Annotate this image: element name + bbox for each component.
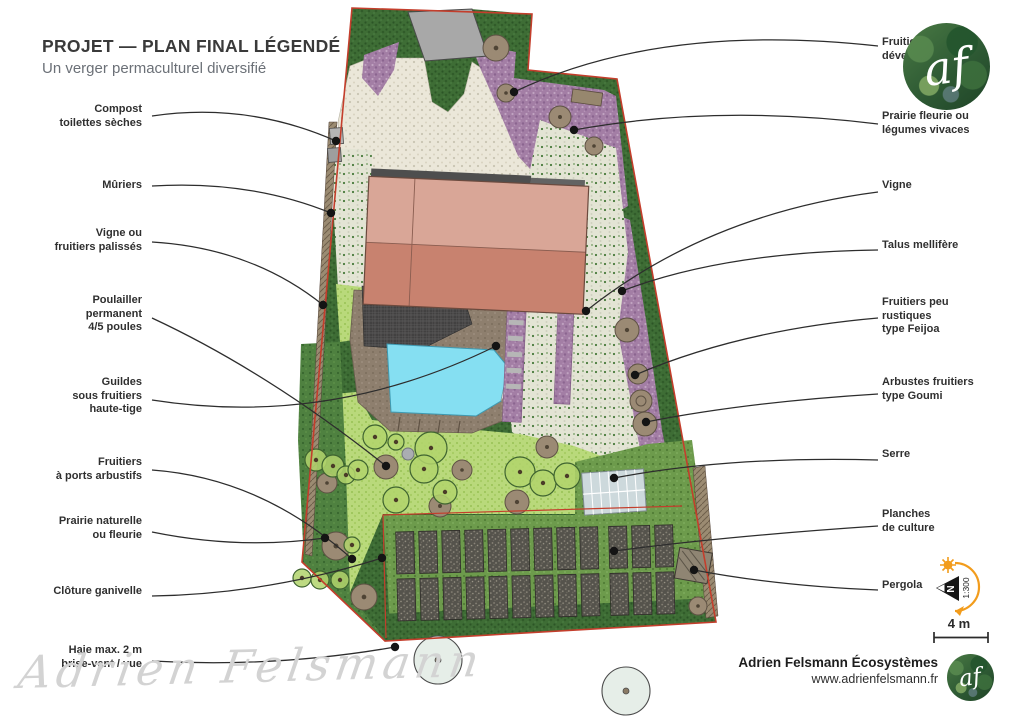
company-logo-small: af xyxy=(947,654,994,701)
scale-bar-line xyxy=(934,632,988,643)
sun-icon xyxy=(940,557,956,573)
house-roof-lower xyxy=(363,242,586,314)
site-plan xyxy=(0,0,1024,724)
logo-monogram: af xyxy=(921,37,973,97)
house-roof-upper xyxy=(366,176,589,252)
north-compass: N 1:300 xyxy=(923,553,985,617)
scale-bar-label: 4 m xyxy=(948,616,970,631)
scale-bar: 4 m xyxy=(925,615,997,645)
logo-monogram-small: af xyxy=(958,663,984,692)
company-logo-large: af xyxy=(903,23,990,110)
company-name: Adrien Felsmann Écosystèmes xyxy=(700,655,938,670)
house xyxy=(363,168,589,314)
company-website: www.adrienfelsmann.fr xyxy=(700,672,938,686)
plan-page: PROJET — PLAN FINAL LÉGENDÉ Un verger pe… xyxy=(0,0,1024,724)
map-scale-text: 1:300 xyxy=(961,577,971,599)
pergola xyxy=(674,547,712,583)
branding-block: Adrien Felsmann Écosystèmes www.adrienfe… xyxy=(700,655,938,686)
pool xyxy=(387,344,508,416)
north-letter: N xyxy=(946,585,957,592)
